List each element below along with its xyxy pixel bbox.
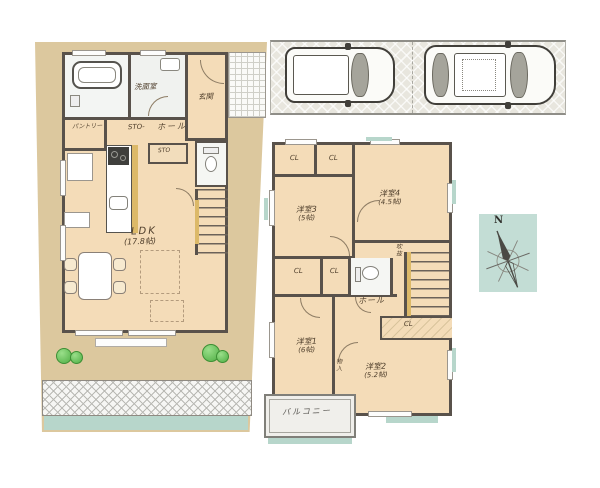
bathtub-icon xyxy=(72,61,122,89)
burner xyxy=(111,151,118,158)
compass-north-label: N xyxy=(494,215,503,226)
toilet-bowl-icon xyxy=(362,266,379,280)
toilet-tank xyxy=(203,147,219,154)
chair-icon xyxy=(64,281,77,294)
pantry-shelf xyxy=(67,153,93,181)
kitchen-wood-strip xyxy=(132,145,138,233)
teal-accent xyxy=(366,137,392,141)
parking-divider xyxy=(412,42,413,113)
bathtub-inner xyxy=(78,67,116,83)
bush-icon xyxy=(70,351,83,364)
wall xyxy=(65,117,185,120)
window xyxy=(72,50,106,56)
window xyxy=(269,190,275,226)
ldk-size-label: (17.8帖) xyxy=(124,237,156,247)
window xyxy=(368,411,412,417)
wall xyxy=(275,174,352,177)
room4-size: (4.5帖) xyxy=(378,198,402,207)
room3-size: (5帖) xyxy=(296,214,317,222)
room4-label: 洋室4 (4.5帖) xyxy=(378,190,402,207)
bath-drain xyxy=(70,95,80,107)
site-teal-strip xyxy=(44,416,248,430)
bush-icon xyxy=(216,350,229,363)
sto-label: STO xyxy=(158,148,170,155)
teal-accent xyxy=(452,348,456,372)
stair-rail-1f xyxy=(195,200,199,244)
car-mirror-icon xyxy=(505,41,511,48)
car-sunroof xyxy=(462,59,496,91)
closet-label: CL xyxy=(330,268,339,276)
car-mirror-icon xyxy=(345,100,351,107)
room2-size: (5.2帖) xyxy=(364,371,388,380)
toilet-bowl-icon xyxy=(205,156,217,172)
burner xyxy=(120,155,126,161)
window xyxy=(60,225,66,261)
storage-label-2f: 物入 xyxy=(334,358,341,372)
entrance-label: 玄関 xyxy=(198,93,213,102)
window xyxy=(140,50,166,56)
window xyxy=(285,139,317,145)
chair-icon xyxy=(113,281,126,294)
hall-label-1f: ホール xyxy=(157,122,187,132)
furniture-outline xyxy=(150,300,184,322)
window xyxy=(269,322,275,358)
room2-label: 洋室2 (5.2帖) xyxy=(364,363,388,380)
toilet-tank xyxy=(355,267,361,282)
entrance-porch-tiles xyxy=(228,52,266,118)
wall xyxy=(320,258,323,296)
dining-table xyxy=(78,252,112,300)
closet-label: CL xyxy=(290,155,299,163)
compass-chip: N xyxy=(479,214,537,292)
washroom-label: 洗面室 xyxy=(134,83,157,92)
stove-icon xyxy=(108,147,129,165)
void-label: 吹抜 xyxy=(394,243,401,257)
closet-label: CL xyxy=(404,321,413,329)
terrace-step xyxy=(95,338,167,347)
wall xyxy=(390,258,393,297)
room1-size: (6帖) xyxy=(296,346,317,354)
car-rear-window xyxy=(432,53,449,97)
washbasin-icon xyxy=(160,58,180,71)
closet-room2 xyxy=(380,316,452,340)
room3-label: 洋室3 (5帖) xyxy=(296,206,318,223)
sink-icon xyxy=(109,196,128,210)
sofa-outline xyxy=(64,212,90,228)
teal-accent xyxy=(452,180,456,204)
closet-label: CL xyxy=(329,155,338,163)
wall xyxy=(275,256,355,259)
window xyxy=(75,330,123,336)
pantry-label: パントリー xyxy=(72,123,103,131)
car-roof xyxy=(293,55,349,95)
stairs-1f xyxy=(195,189,228,255)
chair-icon xyxy=(113,258,126,271)
wall xyxy=(314,145,317,174)
teal-accent xyxy=(268,438,352,444)
wall xyxy=(128,55,131,117)
hall-label-2f: ホール xyxy=(358,297,385,307)
sto-hall-label: STO- xyxy=(128,124,145,132)
wall xyxy=(65,148,107,151)
car-windshield xyxy=(351,53,369,97)
teal-accent xyxy=(264,198,268,220)
window xyxy=(60,160,66,196)
teal-accent xyxy=(386,416,438,423)
floor-plan-canvas: 洗面室 玄関 パントリー STO- ホール STO LDK (17.8帖) xyxy=(0,0,600,488)
room1-label: 洋室1 (6帖) xyxy=(296,338,318,355)
car-icon xyxy=(285,47,395,103)
window xyxy=(128,330,176,336)
compass-rose-icon xyxy=(479,227,537,291)
driveway-hatch xyxy=(42,380,252,416)
closet-label: CL xyxy=(294,268,303,276)
balcony-label: バルコニー xyxy=(282,407,332,418)
car-mirror-icon xyxy=(345,43,351,50)
stair-rail-2f xyxy=(407,252,411,316)
car-mirror-icon xyxy=(505,102,511,109)
wall xyxy=(352,240,452,243)
car-windshield xyxy=(510,52,528,98)
stairs-2f xyxy=(407,252,449,316)
island-outline xyxy=(140,250,180,294)
car-icon xyxy=(424,45,556,105)
